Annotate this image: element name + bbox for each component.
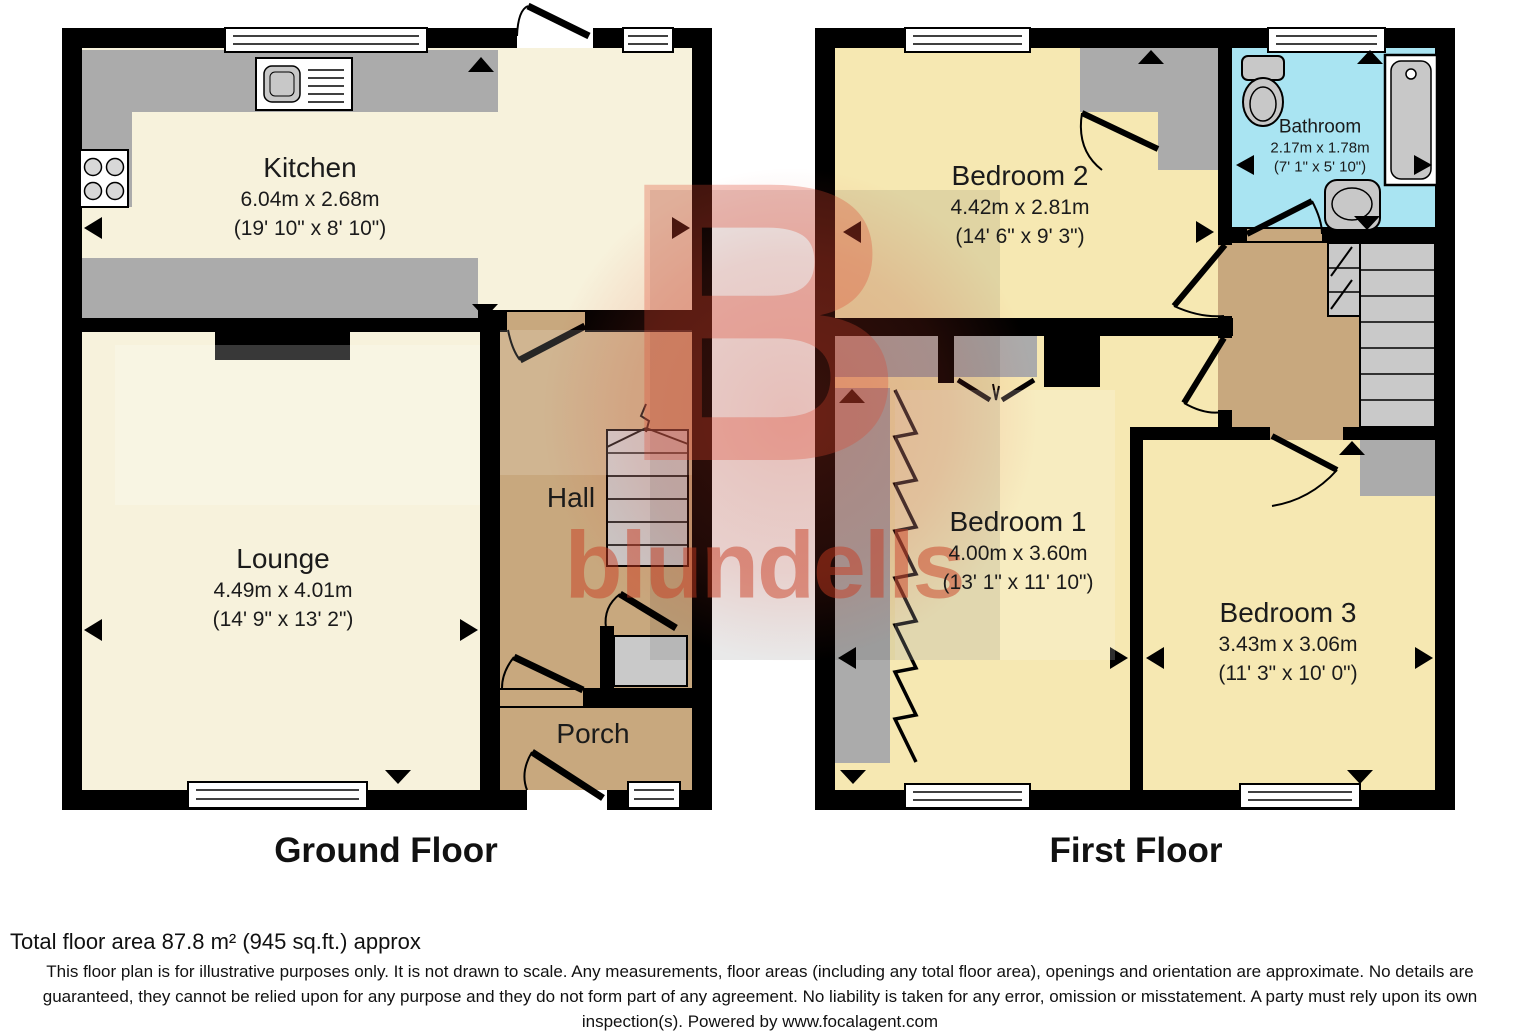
room-name: Lounge <box>213 542 354 576</box>
porch-label: Porch <box>556 717 629 751</box>
room-name: Bathroom <box>1270 116 1369 139</box>
room-dim-imperial: (13' 1" x 11' 10") <box>943 568 1094 597</box>
room-name: Bedroom 1 <box>943 505 1094 539</box>
bedroom2-label: Bedroom 2 4.42m x 2.81m (14' 6" x 9' 3") <box>951 159 1090 251</box>
room-dim-metric: 6.04m x 2.68m <box>234 185 387 214</box>
room-dim-imperial: (11' 3" x 10' 0") <box>1218 659 1357 688</box>
room-dim-imperial: (14' 6" x 9' 3") <box>951 222 1090 251</box>
bedroom1-label: Bedroom 1 4.00m x 3.60m (13' 1" x 11' 10… <box>943 505 1094 597</box>
room-name: Bedroom 2 <box>951 159 1090 193</box>
hall-label: Hall <box>547 481 595 515</box>
room-name: Hall <box>547 481 595 515</box>
disclaimer-text: This floor plan is for illustrative purp… <box>0 959 1520 1032</box>
ground-floor-plan <box>62 6 712 810</box>
room-name: Bedroom 3 <box>1218 596 1357 630</box>
bathroom-label: Bathroom 2.17m x 1.78m (7' 1" x 5' 10") <box>1270 116 1369 177</box>
room-dim-metric: 2.17m x 1.78m <box>1270 139 1369 158</box>
kitchen-sink-icon <box>256 58 352 110</box>
room-dim-imperial: (14' 9" x 13' 2") <box>213 605 354 634</box>
room-dim-imperial: (7' 1" x 5' 10") <box>1270 158 1369 177</box>
hob-icon <box>80 150 128 207</box>
room-dim-imperial: (19' 10" x 8' 10") <box>234 214 387 243</box>
ground-floor-title: Ground Floor <box>274 831 498 871</box>
bedroom3-label: Bedroom 3 3.43m x 3.06m (11' 3" x 10' 0"… <box>1218 596 1357 688</box>
bedroom3-cupboard <box>1360 440 1435 496</box>
first-floor-title: First Floor <box>1049 831 1222 871</box>
room-name: Porch <box>556 717 629 751</box>
room-dim-metric: 4.00m x 3.60m <box>943 539 1094 568</box>
floorplan-page: B blundells Kitchen 6.04m x 2.68m (19' 1… <box>0 0 1520 1032</box>
room-dim-metric: 4.42m x 2.81m <box>951 193 1090 222</box>
chimney-breast-ff <box>1044 318 1100 387</box>
total-floor-area: Total floor area 87.8 m² (945 sq.ft.) ap… <box>10 929 421 955</box>
room-dim-metric: 3.43m x 3.06m <box>1218 630 1357 659</box>
room-dim-metric: 4.49m x 4.01m <box>213 576 354 605</box>
kitchen-label: Kitchen 6.04m x 2.68m (19' 10" x 8' 10") <box>234 151 387 243</box>
room-name: Kitchen <box>234 151 387 185</box>
lounge-label: Lounge 4.49m x 4.01m (14' 9" x 13' 2") <box>213 542 354 634</box>
